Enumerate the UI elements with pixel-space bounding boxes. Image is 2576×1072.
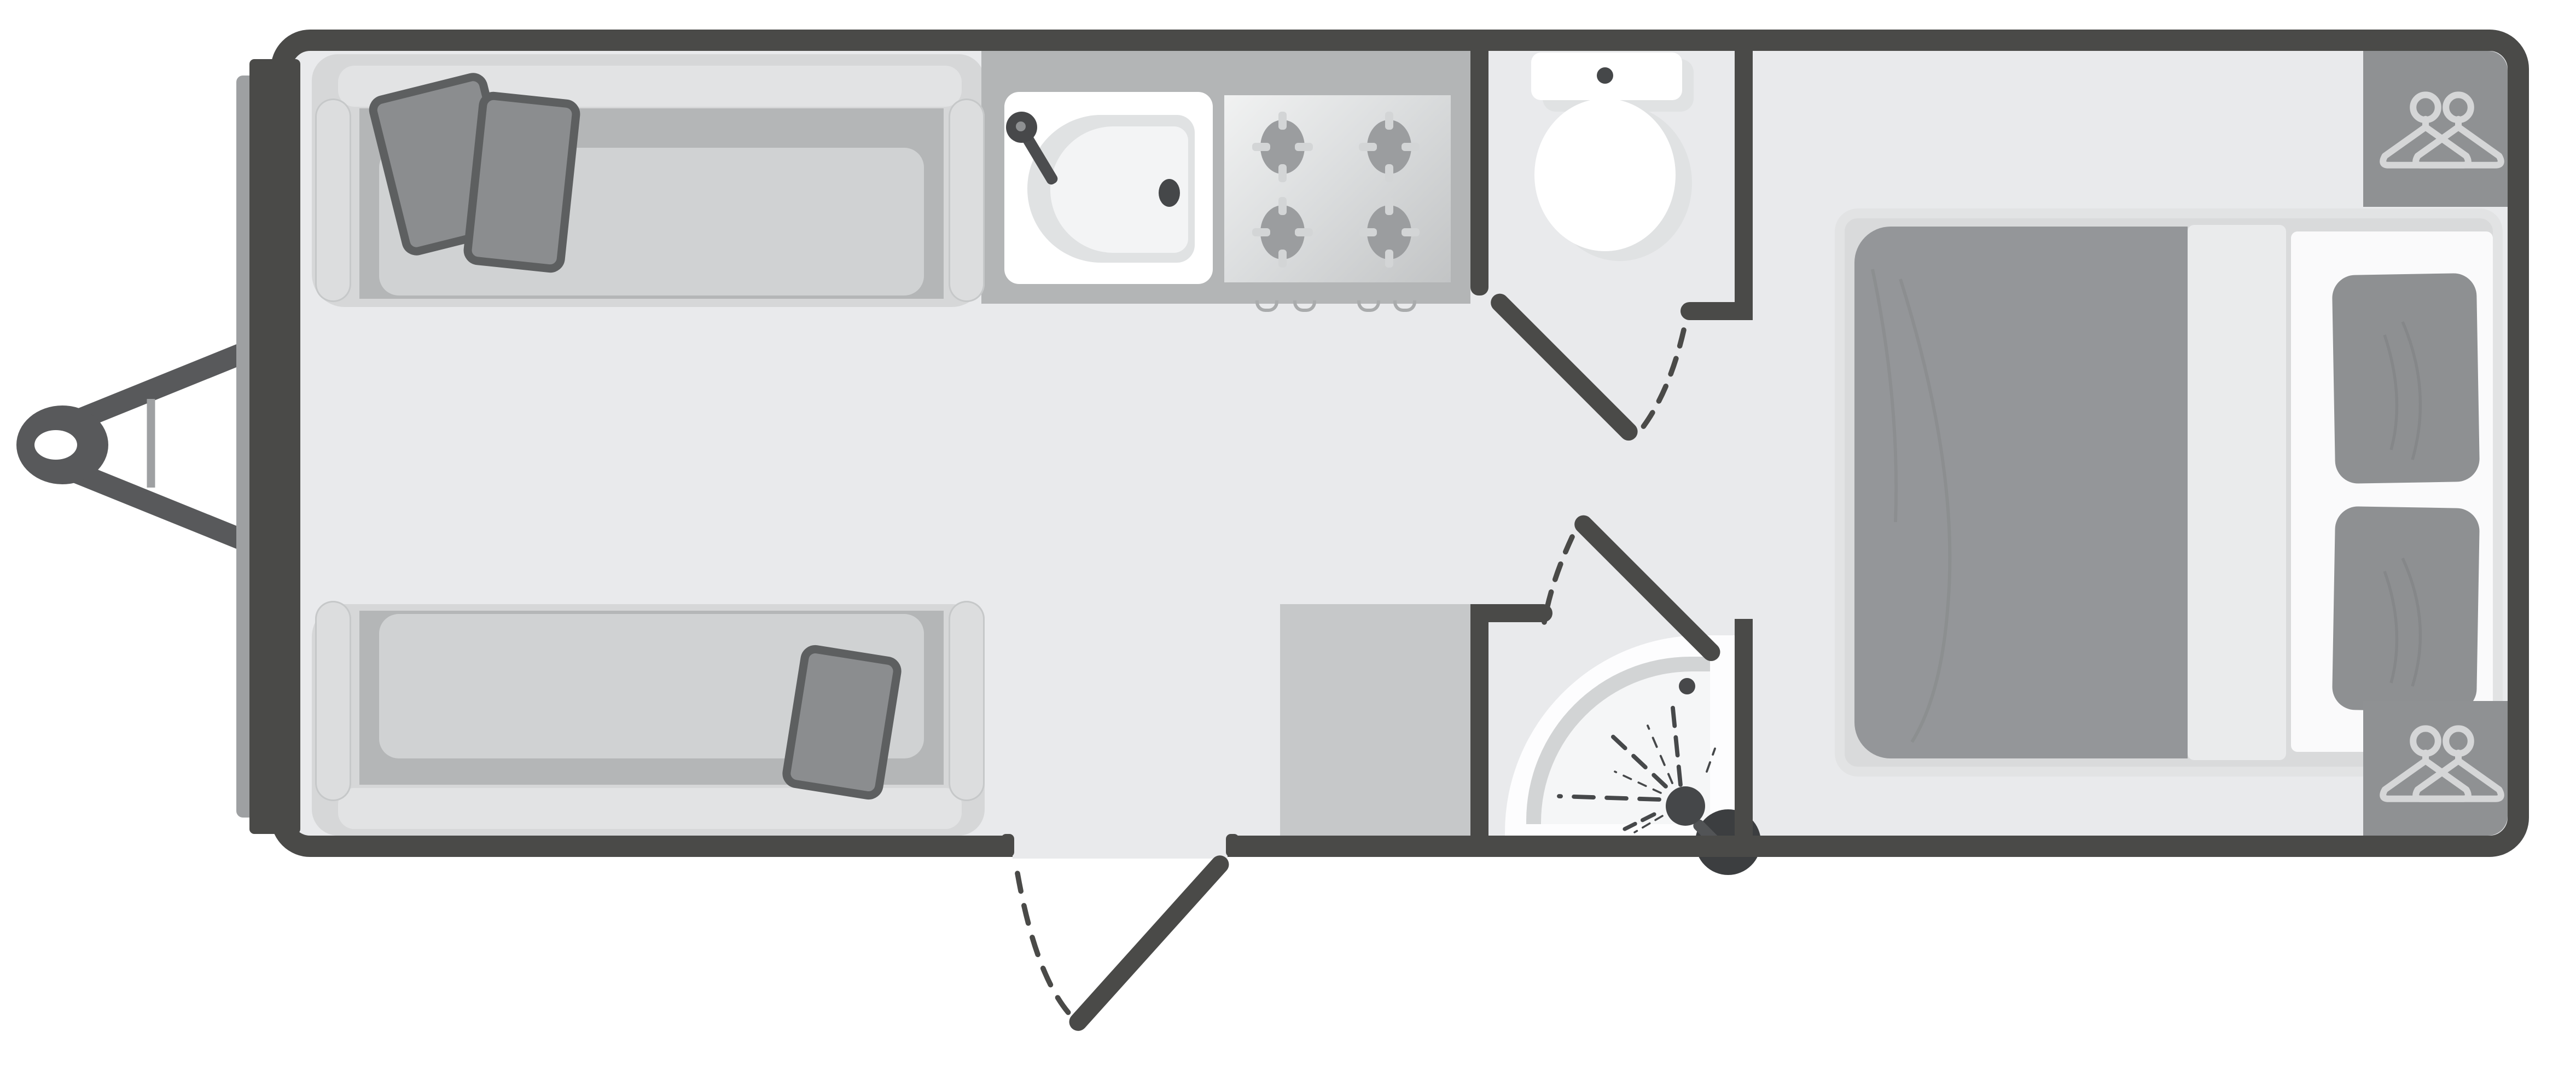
- wall-shower-top: [1470, 604, 1552, 622]
- entry-door-opening: [1013, 834, 1228, 859]
- wall-shower-left: [1470, 604, 1488, 836]
- wall-washroom-bedroom: [1735, 51, 1753, 314]
- caravan-wall-outline: [271, 30, 2529, 857]
- entry-door-jamb-right: [1226, 834, 1239, 857]
- entry-door-swing-arc: [1017, 873, 1070, 1015]
- wall-washroom-return: [1680, 302, 1753, 320]
- entry-door-leaf: [1066, 851, 1233, 1034]
- entry-door-jamb-left: [1001, 834, 1014, 857]
- coupling-ring: [16, 405, 108, 484]
- wall-kitchen-washroom: [1470, 51, 1488, 295]
- floorplan-canvas: [0, 0, 2576, 1072]
- coupling-ring-hole: [34, 430, 77, 460]
- front-trim-rail: [236, 76, 251, 818]
- wall-shower-bedroom: [1735, 619, 1753, 836]
- floorplan-stage: [0, 0, 2576, 1072]
